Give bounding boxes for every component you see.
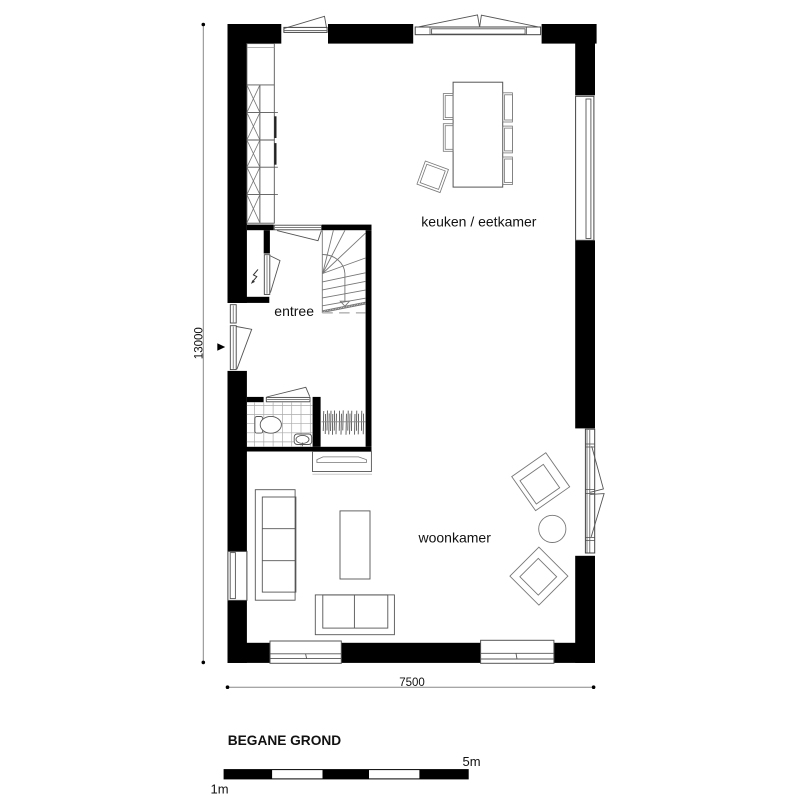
svg-text:5m: 5m [463, 754, 481, 769]
svg-text:1m: 1m [211, 782, 229, 797]
svg-text:entree: entree [274, 303, 314, 319]
svg-text:woonkamer: woonkamer [418, 530, 492, 546]
svg-text:keuken / eetkamer: keuken / eetkamer [421, 214, 537, 230]
svg-text:BEGANE GROND: BEGANE GROND [228, 733, 341, 748]
svg-text:7500: 7500 [399, 677, 425, 689]
svg-text:13000: 13000 [194, 327, 206, 359]
